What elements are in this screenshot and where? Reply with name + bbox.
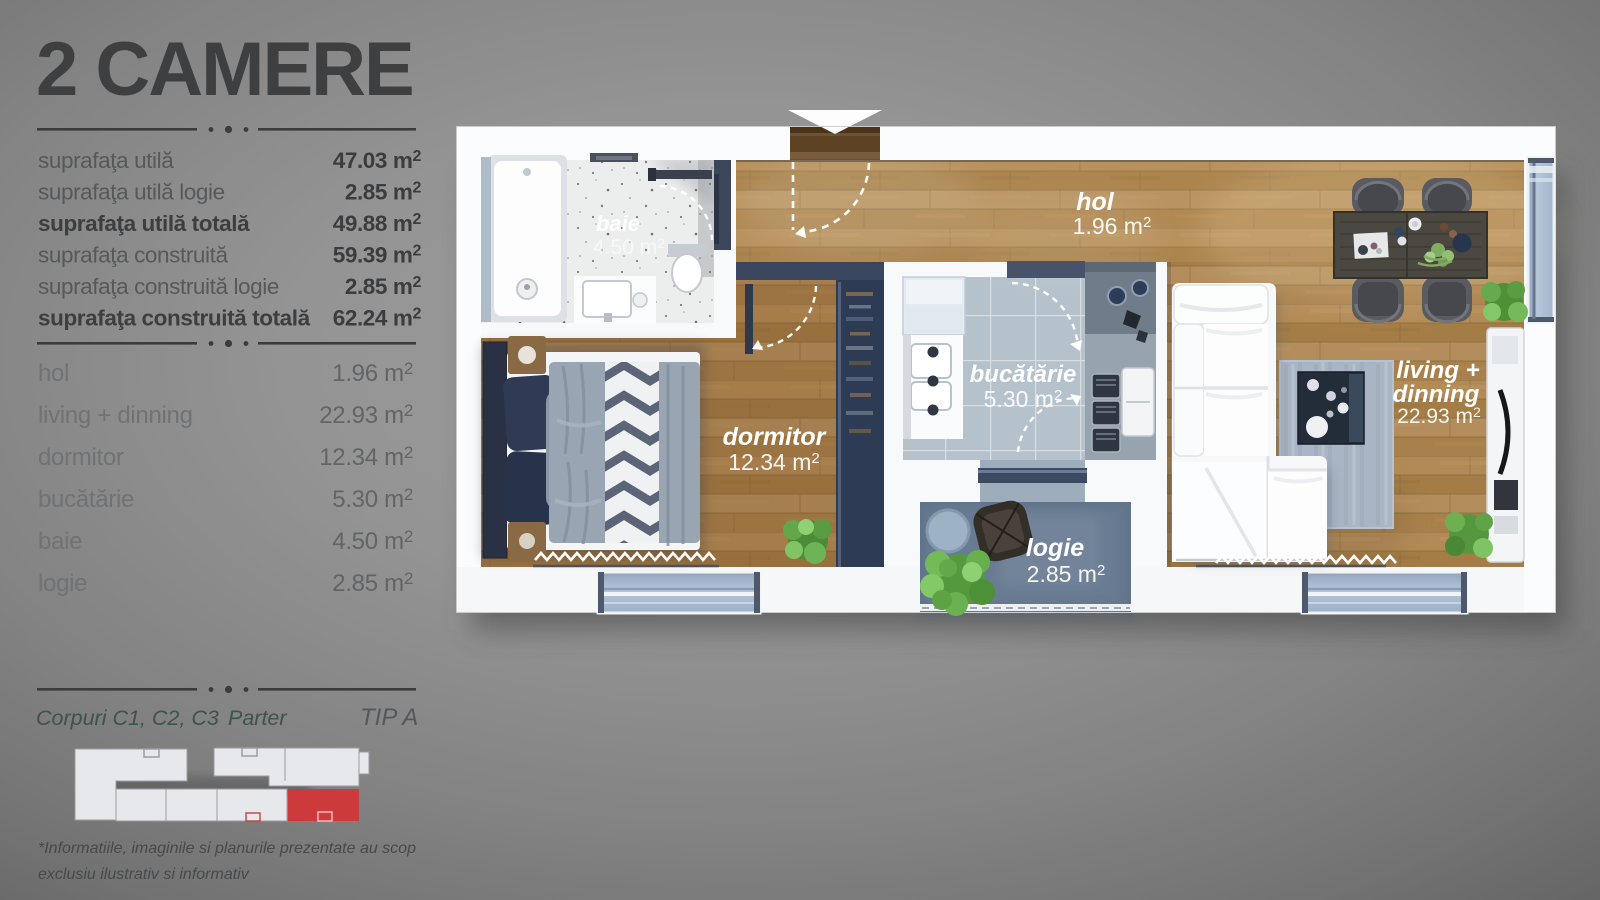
svg-text:living +: living +	[1396, 357, 1479, 384]
svg-text:suprafaţa construită totală: suprafaţa construită totală	[38, 306, 311, 331]
svg-text:1.96 m2: 1.96 m2	[332, 359, 413, 387]
svg-text:exclusiu ilustrativ si informa: exclusiu ilustrativ si informativ	[38, 866, 250, 883]
svg-text:62.24 m2: 62.24 m2	[333, 306, 422, 331]
svg-text:2 CAMERE: 2 CAMERE	[36, 27, 413, 112]
svg-text:22.93 m2: 22.93 m2	[1397, 404, 1481, 428]
svg-text:baie: baie	[38, 528, 82, 555]
svg-text:suprafaţa utilă totală: suprafaţa utilă totală	[38, 211, 250, 236]
svg-text:5.30 m2: 5.30 m2	[984, 386, 1063, 412]
svg-text:dinning: dinning	[1393, 381, 1480, 408]
svg-text:2.85 m2: 2.85 m2	[332, 569, 413, 597]
svg-text:5.30 m2: 5.30 m2	[332, 485, 413, 513]
svg-text:suprafaţa construită: suprafaţa construită	[38, 243, 228, 268]
svg-text:dormitor: dormitor	[723, 423, 827, 451]
svg-text:logie: logie	[38, 570, 87, 597]
svg-text:47.03 m2: 47.03 m2	[333, 148, 422, 173]
svg-text:dormitor: dormitor	[38, 444, 124, 471]
svg-text:12.34 m2: 12.34 m2	[728, 449, 819, 475]
svg-text:12.34 m2: 12.34 m2	[319, 443, 413, 471]
svg-text:bucătărie: bucătărie	[970, 361, 1077, 388]
svg-text:2.85 m2: 2.85 m2	[345, 180, 422, 205]
svg-text:1.96 m2: 1.96 m2	[1073, 213, 1152, 239]
svg-text:4.50 m2: 4.50 m2	[332, 527, 413, 555]
svg-text:suprafaţa construită logie: suprafaţa construită logie	[38, 274, 279, 299]
svg-text:Parter: Parter	[228, 706, 287, 730]
svg-text:living + dinning: living + dinning	[38, 402, 193, 429]
svg-text:4.50 m2: 4.50 m2	[593, 235, 665, 259]
svg-text:hol: hol	[38, 360, 69, 387]
svg-text:TIP A: TIP A	[360, 704, 418, 731]
svg-text:*Informatiile, imaginile si pl: *Informatiile, imaginile si planurile pr…	[38, 840, 416, 857]
svg-text:baie: baie	[596, 211, 640, 236]
svg-text:49.88 m2: 49.88 m2	[333, 211, 422, 236]
svg-text:22.93 m2: 22.93 m2	[319, 401, 413, 429]
svg-text:59.39 m2: 59.39 m2	[333, 243, 422, 268]
svg-text:bucătărie: bucătărie	[38, 486, 134, 513]
svg-text:2.85 m2: 2.85 m2	[1027, 561, 1106, 587]
svg-text:hol: hol	[1076, 188, 1115, 216]
svg-text:2.85 m2: 2.85 m2	[345, 274, 422, 299]
svg-text:suprafaţa utilă: suprafaţa utilă	[38, 148, 174, 173]
svg-text:suprafaţa utilă logie: suprafaţa utilă logie	[38, 180, 225, 205]
svg-text:Corpuri C1, C2, C3: Corpuri C1, C2, C3	[36, 706, 219, 730]
svg-text:logie: logie	[1026, 534, 1084, 562]
